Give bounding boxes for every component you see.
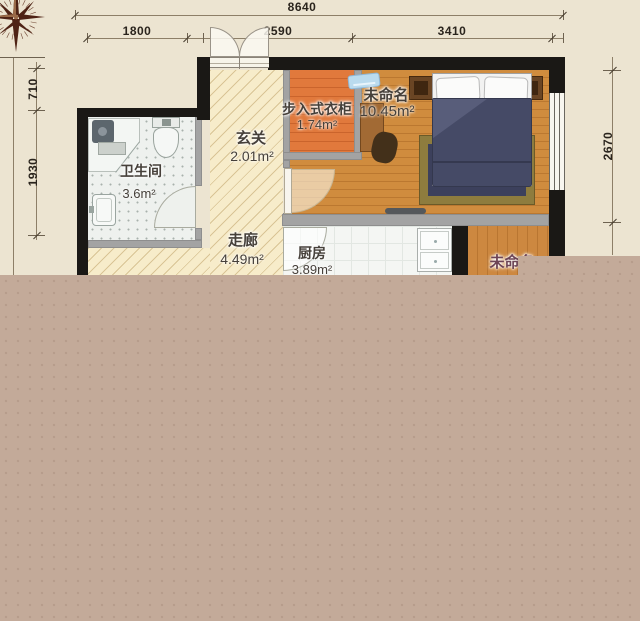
corridor-area-label: 4.49m² xyxy=(220,251,264,267)
washbasin-inner xyxy=(96,198,112,222)
wall-bathroom-top xyxy=(77,108,210,117)
toilet-flush-button xyxy=(162,119,171,126)
entry-door-swing-right xyxy=(239,27,269,57)
nightstand-left[interactable] xyxy=(409,76,433,100)
window-right xyxy=(549,93,565,190)
dim-line-total-top xyxy=(75,15,563,16)
wall-bedroom-west-upper xyxy=(283,160,290,168)
dim-label-3410: 3410 xyxy=(438,24,467,38)
closet-name-label: 步入式衣柜 xyxy=(282,99,352,119)
wall-south-interior xyxy=(282,214,549,226)
wall-bathroom-bottom xyxy=(88,240,202,248)
wall-top xyxy=(268,57,565,70)
corridor-name-label: 走廊 xyxy=(228,229,258,250)
sink-drain-dot xyxy=(434,240,437,243)
dim-label-total: 8640 xyxy=(288,0,317,14)
sink-basin-bottom xyxy=(420,252,449,269)
overlay-block-main xyxy=(0,275,640,621)
dim-label-1930: 1930 xyxy=(26,152,40,192)
washbasin[interactable] xyxy=(92,194,116,226)
shower-shelf xyxy=(98,142,126,155)
shower-head-dot xyxy=(98,127,107,136)
kitchen-name-label: 厨房 xyxy=(298,243,326,263)
bedroom-door-leaf xyxy=(284,168,292,214)
dim-tick xyxy=(0,57,45,58)
entry-door-swing-left xyxy=(210,27,240,57)
wall-right-upper xyxy=(549,57,565,93)
closet-area-label: 1.74m² xyxy=(297,117,337,132)
window-pane-line xyxy=(559,93,560,190)
entry-door-split-line xyxy=(239,58,240,69)
bedroom-name-label: 未命名 xyxy=(363,84,408,105)
entry-door-threshold[interactable] xyxy=(210,57,269,68)
wall-bathroom-right-upper xyxy=(195,117,202,186)
sink-basin-top xyxy=(420,231,449,250)
foyer-name-label: 玄关 xyxy=(236,127,266,148)
dim-tick xyxy=(203,33,204,43)
kitchen-sink-cabinet[interactable] xyxy=(417,228,452,272)
wall-left xyxy=(77,108,88,275)
corridor-floor[interactable] xyxy=(88,248,210,275)
dim-label-710: 710 xyxy=(26,69,40,109)
wall-kitchen-divider xyxy=(452,226,468,275)
compass-rose-icon xyxy=(0,0,54,56)
dim-line-left-outer xyxy=(13,57,14,275)
dim-label-1800: 1800 xyxy=(123,24,152,38)
bathroom-area-label: 3.6m² xyxy=(122,186,155,201)
washbasin-faucet xyxy=(89,206,94,213)
wall-bathroom-right-lower xyxy=(195,228,202,240)
bed[interactable] xyxy=(432,73,532,186)
wall-closet-bottom xyxy=(283,152,362,160)
shower-head-unit xyxy=(92,120,114,143)
bed-blanket xyxy=(432,98,532,187)
bedroom-area-label: 10.45m² xyxy=(359,103,414,120)
window-pane-line xyxy=(554,93,555,190)
dim-line-segments-top xyxy=(87,38,563,39)
blanket-fold xyxy=(433,99,531,186)
overlay-block-right xyxy=(518,256,640,276)
sink-drain-dot xyxy=(434,260,437,263)
wall-shelf[interactable] xyxy=(385,208,426,214)
floor-plan-canvas: 8640 1800 2590 3410 710 1930 2670 xyxy=(0,0,640,621)
dim-label-2670: 2670 xyxy=(601,126,615,166)
dim-tick xyxy=(563,33,564,43)
nightstand-top xyxy=(414,81,428,95)
bathroom-name-label: 卫生间 xyxy=(120,161,162,181)
foyer-area-label: 2.01m² xyxy=(230,148,274,164)
blanket-fold-line xyxy=(433,161,531,163)
